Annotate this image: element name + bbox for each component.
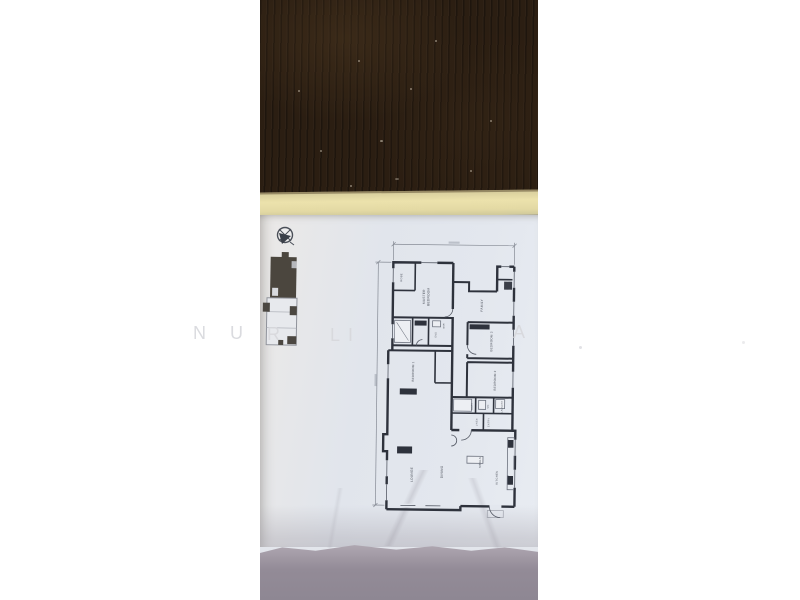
north-arrow-compass-icon: [270, 220, 300, 250]
room-label-lounge: LOUNGE: [410, 467, 414, 482]
wood-table-surface: [260, 0, 538, 193]
room-label-kitchen: KITCHEN: [495, 471, 499, 485]
room-label-ens: ENS: [434, 332, 437, 338]
watermark-letter: N: [193, 323, 206, 344]
table-shadow-below-paper: [260, 544, 538, 600]
room-label-meals: MEALS: [478, 457, 482, 468]
room-label-bed1: BEDROOM 1: [411, 361, 415, 381]
room-label-bath: BATH: [471, 403, 474, 410]
watermark-speck: [742, 341, 745, 344]
room-label-master2: BEDROOM: [426, 287, 430, 305]
room-label-entry: ENTRY: [487, 418, 490, 428]
room-label-wir: WIR: [443, 323, 446, 328]
watermark-letter: A: [513, 322, 525, 343]
room-label-dining: DINING: [440, 465, 444, 478]
room-label-wc: WC: [488, 404, 490, 408]
room-label-bed2: BEDROOM 2: [493, 370, 497, 390]
photo-of-floor-plan-page: MASTER BEDROOM ROBE WIR ENS FAMILY BEDRO…: [260, 0, 538, 600]
screenshot: MASTER BEDROOM ROBE WIR ENS FAMILY BEDRO…: [0, 0, 800, 600]
room-label-family: FAMILY: [480, 298, 484, 311]
watermark-letter: U: [230, 323, 243, 344]
watermark-letter: L: [330, 325, 340, 346]
room-label-robe: ROBE: [399, 273, 403, 281]
watermark-speck: [579, 346, 582, 349]
watermark-letter: R: [267, 324, 280, 345]
watermark-letter: I: [348, 325, 353, 346]
room-label-linen: LINEN: [476, 418, 478, 426]
floor-plan-drawing: MASTER BEDROOM ROBE WIR ENS FAMILY BEDRO…: [372, 225, 532, 520]
room-label-bed3: BEDROOM 3: [489, 331, 493, 351]
room-label-laundry: LAUNDRY: [501, 400, 504, 412]
